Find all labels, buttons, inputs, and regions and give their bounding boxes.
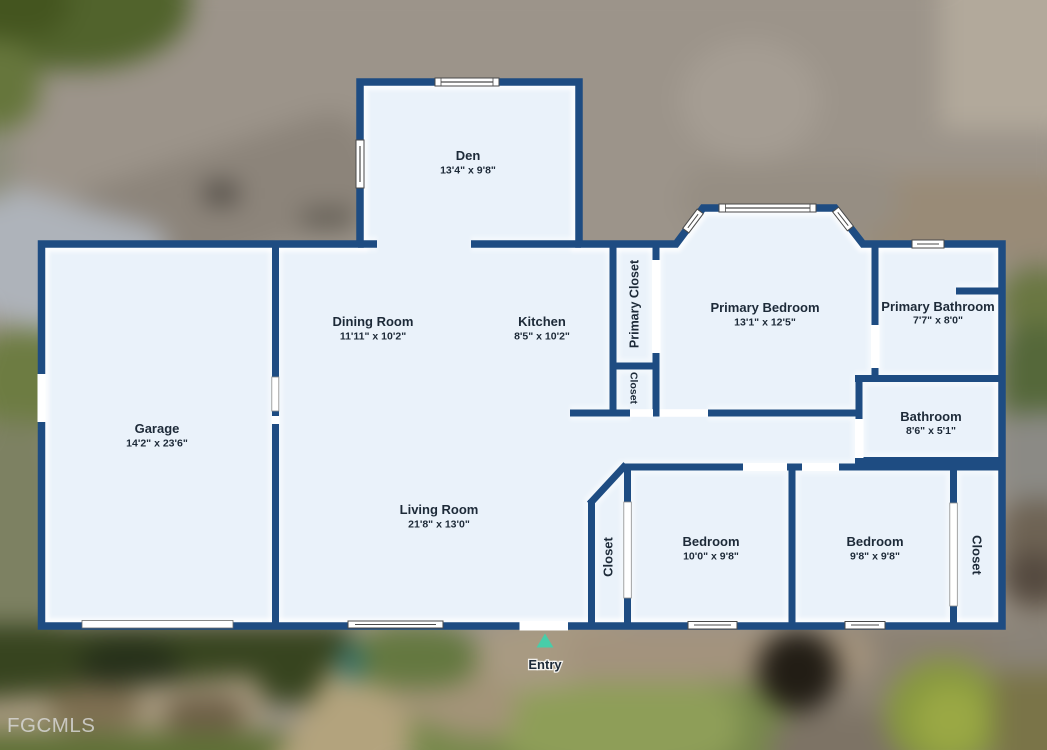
svg-text:Garage: Garage (135, 421, 180, 436)
svg-text:8'5" x 10'2": 8'5" x 10'2" (514, 331, 570, 343)
svg-text:Entry: Entry (528, 657, 562, 672)
svg-text:Primary Bedroom: Primary Bedroom (710, 300, 819, 315)
svg-text:Bedroom: Bedroom (682, 534, 739, 549)
svg-text:Closet: Closet (600, 536, 615, 576)
svg-text:Living Room: Living Room (400, 502, 479, 517)
svg-text:Den: Den (456, 148, 481, 163)
svg-text:Bathroom: Bathroom (900, 409, 961, 424)
svg-text:13'4" x 9'8": 13'4" x 9'8" (440, 165, 496, 177)
svg-text:Closet: Closet (970, 535, 985, 575)
svg-text:7'7" x 8'0": 7'7" x 8'0" (913, 315, 963, 327)
svg-text:Bedroom: Bedroom (846, 534, 903, 549)
svg-text:13'1" x 12'5": 13'1" x 12'5" (734, 317, 796, 329)
svg-text:14'2" x 23'6": 14'2" x 23'6" (126, 438, 188, 450)
svg-text:8'6" x 5'1": 8'6" x 5'1" (906, 425, 956, 437)
svg-text:Primary Bathroom: Primary Bathroom (881, 299, 994, 314)
svg-text:11'11" x 10'2": 11'11" x 10'2" (340, 331, 406, 343)
svg-text:Kitchen: Kitchen (518, 314, 566, 329)
svg-text:21'8" x 13'0": 21'8" x 13'0" (408, 519, 470, 531)
svg-text:Closet: Closet (628, 372, 640, 405)
svg-text:10'0" x 9'8": 10'0" x 9'8" (683, 551, 739, 563)
svg-text:Primary Closet: Primary Closet (627, 259, 641, 348)
svg-text:9'8" x 9'8": 9'8" x 9'8" (850, 551, 900, 563)
svg-text:Dining Room: Dining Room (333, 314, 414, 329)
